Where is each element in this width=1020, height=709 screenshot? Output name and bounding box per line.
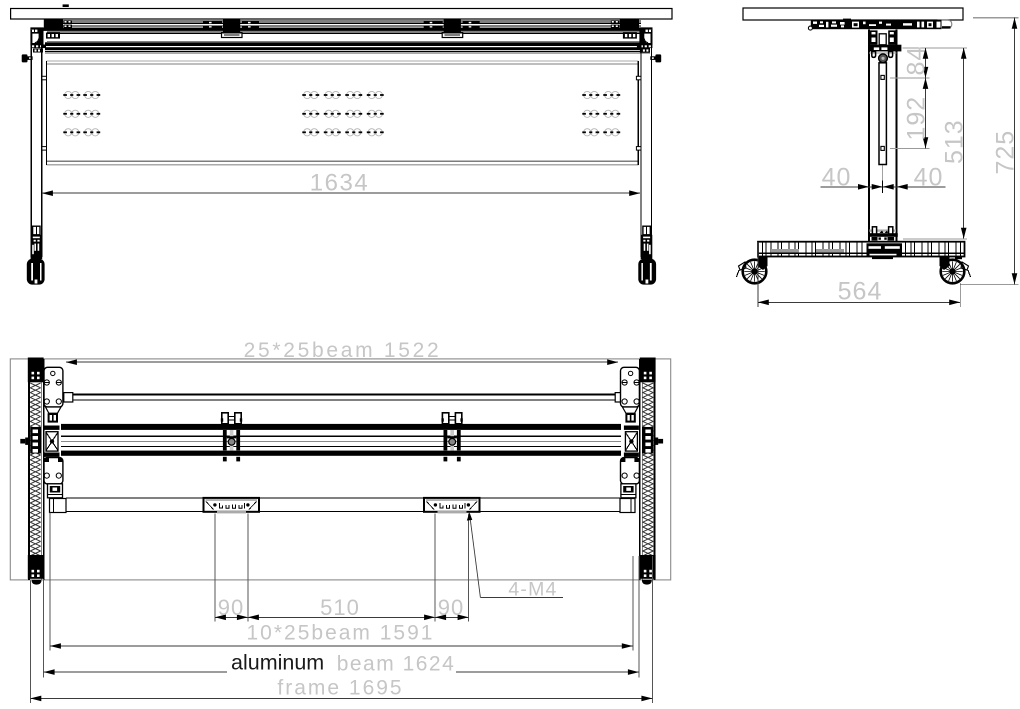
svg-text:aluminum: aluminum <box>231 651 324 675</box>
svg-text:513: 513 <box>941 119 969 164</box>
svg-text:725: 725 <box>991 130 1019 175</box>
svg-text:84: 84 <box>902 46 930 76</box>
svg-text:1634: 1634 <box>310 170 369 197</box>
svg-text:510: 510 <box>320 595 360 620</box>
svg-text:90: 90 <box>218 595 244 620</box>
svg-text:frame 1695: frame 1695 <box>277 677 403 700</box>
svg-text:25*25beam 1522: 25*25beam 1522 <box>244 339 442 362</box>
svg-text:40: 40 <box>822 164 852 192</box>
svg-text:192: 192 <box>902 96 930 141</box>
svg-text:90: 90 <box>438 595 464 620</box>
svg-text:40: 40 <box>914 164 944 192</box>
svg-text:beam 1624: beam 1624 <box>337 653 456 676</box>
svg-text:4-M4: 4-M4 <box>508 579 557 601</box>
svg-text:10*25beam 1591: 10*25beam 1591 <box>247 622 435 645</box>
svg-text:564: 564 <box>838 278 883 306</box>
